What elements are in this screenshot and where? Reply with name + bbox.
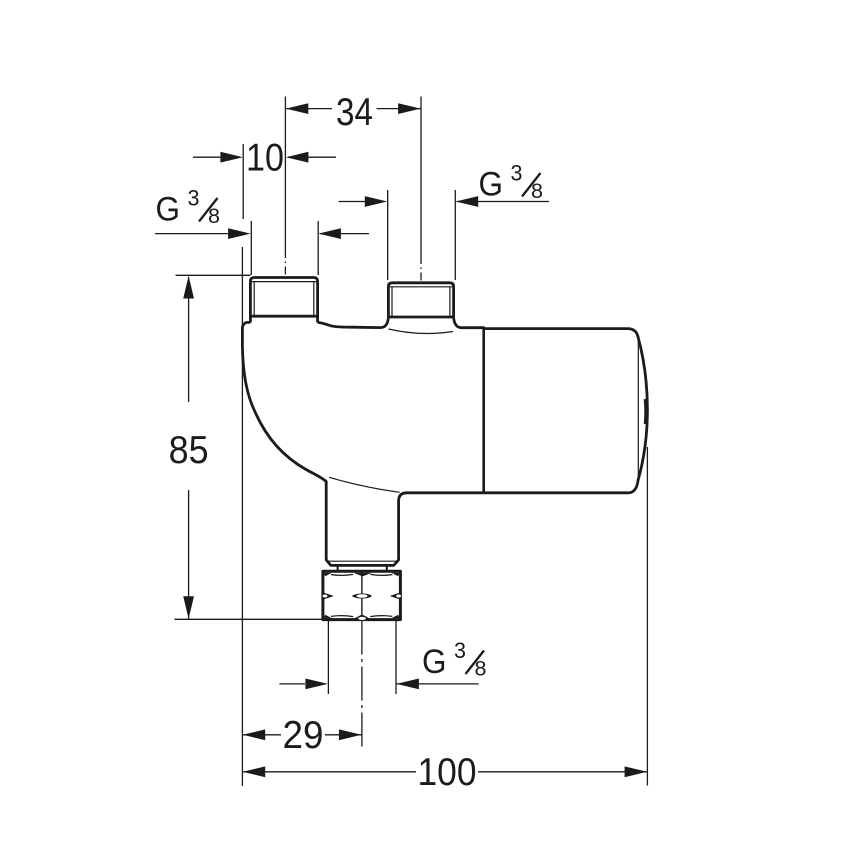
svg-text:3: 3 <box>454 638 466 663</box>
svg-text:10: 10 <box>246 136 284 179</box>
svg-text:3: 3 <box>511 161 523 186</box>
svg-text:85: 85 <box>169 429 209 472</box>
svg-text:G: G <box>156 191 181 229</box>
svg-text:3: 3 <box>188 186 200 211</box>
svg-text:8: 8 <box>475 658 487 681</box>
svg-text:34: 34 <box>336 91 373 134</box>
svg-text:G: G <box>422 643 447 681</box>
svg-text:8: 8 <box>208 205 220 228</box>
svg-text:29: 29 <box>283 714 324 757</box>
svg-text:8: 8 <box>531 180 543 203</box>
svg-text:100: 100 <box>418 751 477 794</box>
svg-text:G: G <box>479 166 504 204</box>
